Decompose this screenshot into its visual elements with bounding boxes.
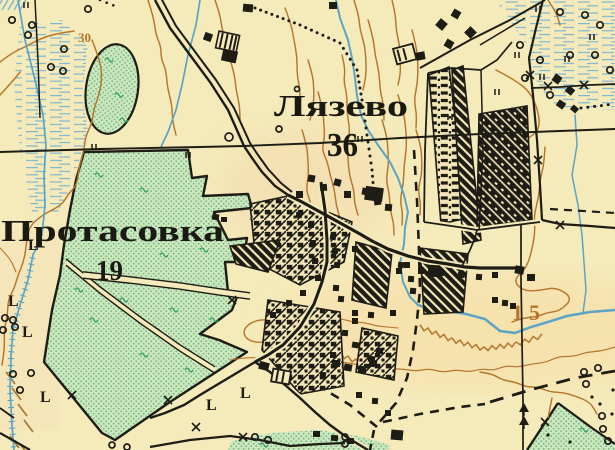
svg-text:Лязево: Лязево [274, 88, 408, 123]
svg-text:L: L [206, 397, 217, 414]
svg-text:L: L [22, 324, 33, 341]
svg-text:L: L [8, 293, 19, 310]
svg-text:Протасовка: Протасовка [1, 213, 225, 248]
svg-text:36: 36 [327, 127, 358, 164]
svg-text:19: 19 [96, 256, 123, 287]
svg-text:30: 30 [78, 30, 91, 45]
svg-text:L: L [40, 389, 51, 406]
svg-text:L: L [240, 385, 251, 402]
